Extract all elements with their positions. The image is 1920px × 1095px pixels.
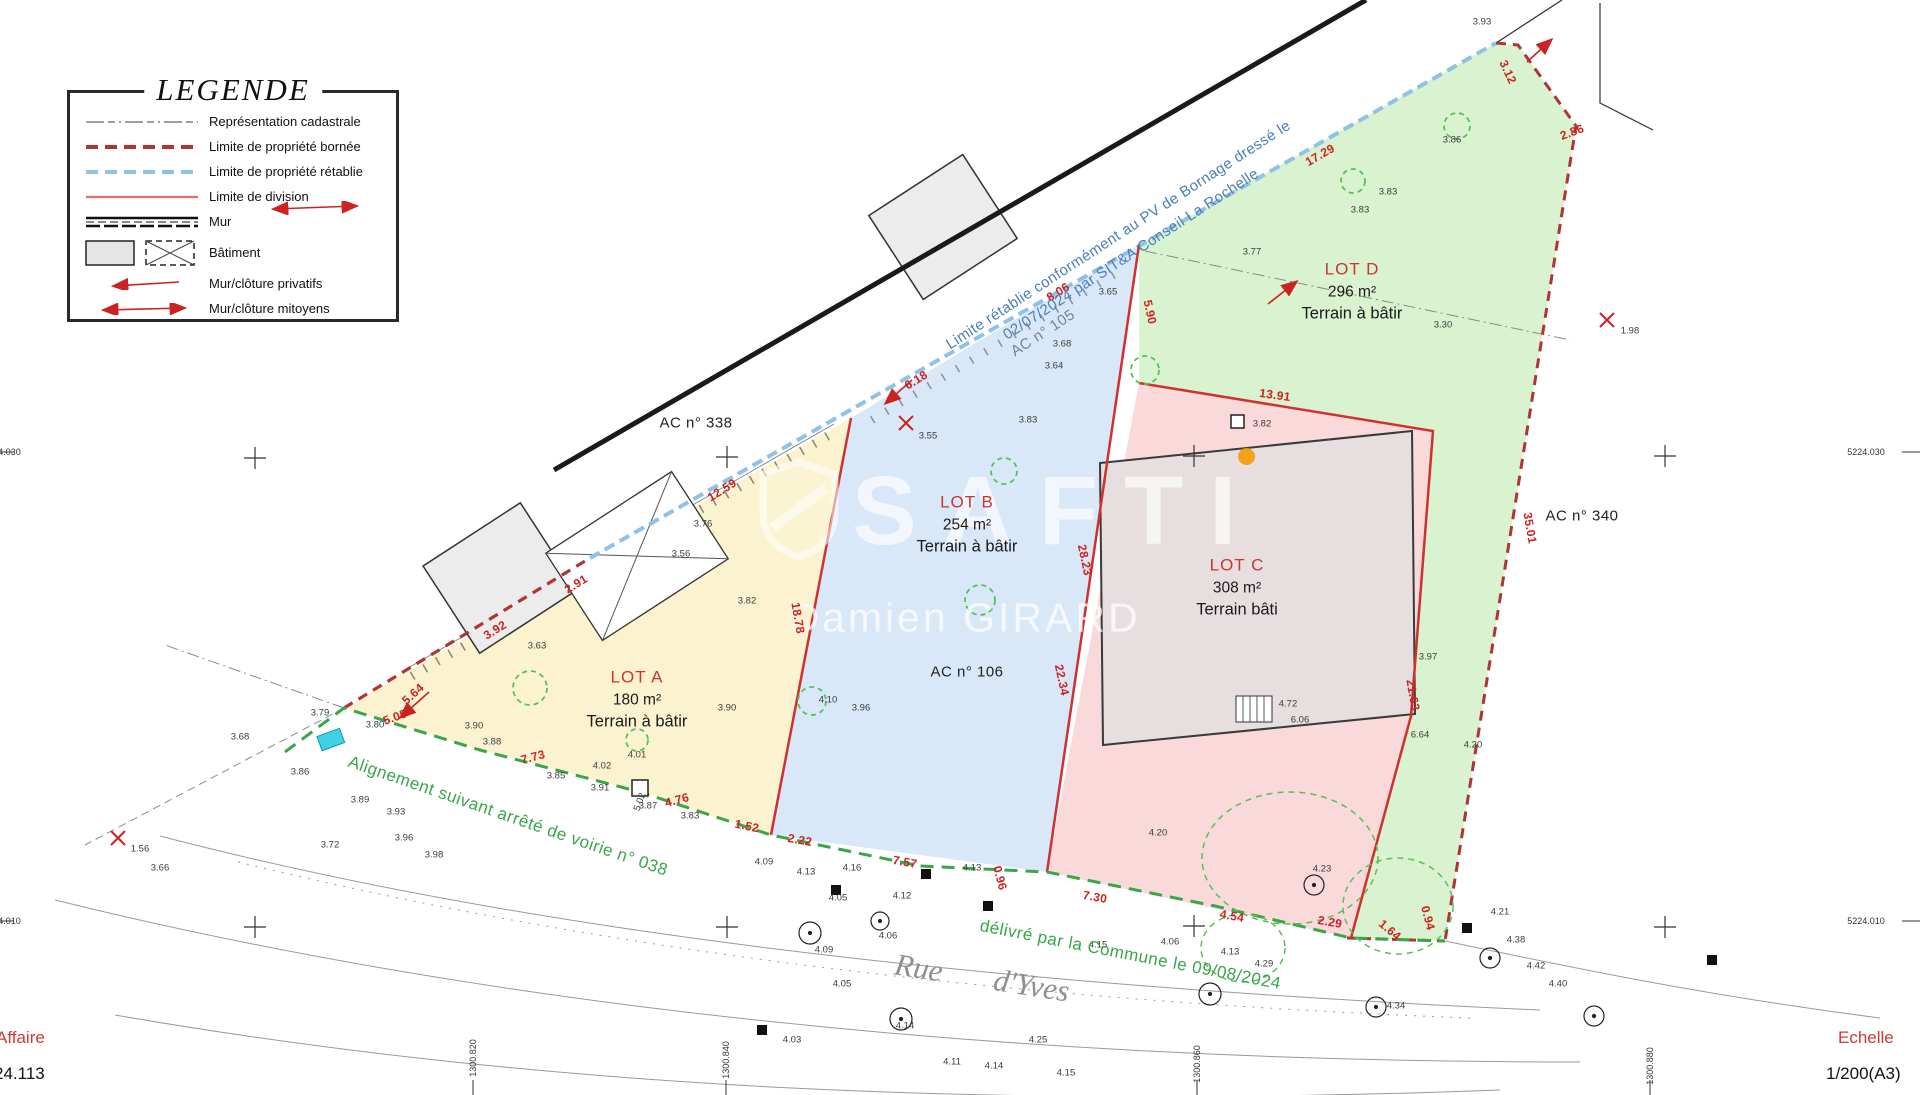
street-word-1: Rue xyxy=(892,946,945,989)
spot-elevation: 6.64 xyxy=(1411,730,1430,741)
spot-elevation: 3.98 xyxy=(425,850,444,861)
spot-elevation: 3.83 xyxy=(1379,187,1398,198)
spot-elevation: 3.56 xyxy=(672,549,691,560)
spot-elevation: 3.66 xyxy=(151,863,170,874)
legend-row-batiment: Bâtiment xyxy=(84,234,388,271)
red-dashed-sample xyxy=(84,142,209,152)
spot-elevation: 3.83 xyxy=(1351,205,1370,216)
spot-elevation: 3.82 xyxy=(738,596,757,607)
watermark-agent: Damien GIRARD xyxy=(789,595,1140,642)
spot-elevation: 4.20 xyxy=(1149,828,1168,839)
spot-elevation: 3.83 xyxy=(1019,415,1038,426)
spot-elevation: 3.93 xyxy=(387,807,406,818)
lot-area: 308 m² xyxy=(1127,578,1347,600)
spot-elevation: 4.13 xyxy=(963,863,982,874)
spot-elevation: 4.38 xyxy=(1507,935,1526,946)
spot-elevation: 3.76 xyxy=(694,519,713,530)
legend-row-mitoyens: Mur/clôture mitoyens xyxy=(84,296,388,321)
affaire-value: 24.113 xyxy=(0,1064,45,1084)
spot-elevation: 4.72 xyxy=(1279,699,1298,710)
spot-elevation: 6.06 xyxy=(1291,715,1310,726)
lot-type: Terrain à bâtir xyxy=(527,711,747,734)
spot-elevation: 4.16 xyxy=(843,863,862,874)
affaire-label: Affaire xyxy=(0,1028,45,1048)
spot-elevation: 3.68 xyxy=(231,732,250,743)
lot-name: LOT D xyxy=(1242,258,1462,282)
spot-elevation: 3.90 xyxy=(465,721,484,732)
legend-label: Bâtiment xyxy=(209,245,260,260)
watermark-orange-dot xyxy=(1238,448,1255,465)
arrow-single-sample xyxy=(84,278,209,290)
spot-elevation: 4.09 xyxy=(755,857,774,868)
spot-elevation: 3.93 xyxy=(1473,17,1492,28)
parcel-number: AC n° 338 xyxy=(659,415,732,432)
parcel-number: AC n° 106 xyxy=(930,664,1003,681)
legend-label: Limite de propriété rétablie xyxy=(209,164,363,179)
spot-elevation: 3.64 xyxy=(1045,361,1064,372)
spot-elevation: 4.06 xyxy=(1161,937,1180,948)
legend-row-cadastrale: Représentation cadastrale xyxy=(84,109,388,134)
legend-title: LEGENDE xyxy=(144,72,322,108)
legend-label: Mur xyxy=(209,214,231,229)
spot-elevation: 4.14 xyxy=(896,1021,915,1032)
spot-elevation: 3.96 xyxy=(852,703,871,714)
lot-area: 180 m² xyxy=(527,690,747,712)
grid-coordinate-vertical: 1300.820 xyxy=(468,1039,478,1077)
spot-elevation: 4.01 xyxy=(628,750,647,761)
spot-elevation: 3.68 xyxy=(1053,339,1072,350)
spot-elevation: 3.72 xyxy=(321,840,340,851)
spot-elevation: 3.30 xyxy=(1434,320,1453,331)
spot-elevation: 4.20 xyxy=(1464,740,1483,751)
spot-elevation: 3.89 xyxy=(351,795,370,806)
grid-coordinate-vertical: 1300.860 xyxy=(1192,1045,1202,1083)
spot-elevation: 4.12 xyxy=(893,891,912,902)
spot-elevation: 4.14 xyxy=(985,1061,1004,1072)
lot-type: Terrain bâti xyxy=(1127,599,1347,622)
spot-elevation: 4.05 xyxy=(829,893,848,904)
spot-elevation: 1.56 xyxy=(131,844,150,855)
spot-elevation: 3.63 xyxy=(528,641,547,652)
arrow-double-sample xyxy=(84,303,209,315)
spot-elevation: 3.79 xyxy=(311,708,330,719)
spot-elevation: 4.23 xyxy=(1313,864,1332,875)
division-direction-arrow xyxy=(260,201,370,215)
spot-elevation: 4.03 xyxy=(783,1035,802,1046)
lot-area: 296 m² xyxy=(1242,282,1462,304)
lot-label: LOT A 180 m² Terrain à bâtir xyxy=(527,666,747,735)
spot-elevation: 3.77 xyxy=(1243,247,1262,258)
spot-elevation: 4.25 xyxy=(1029,1035,1048,1046)
spot-elevation: 4.40 xyxy=(1549,979,1568,990)
lot-name: LOT C xyxy=(1127,554,1347,578)
grid-coordinate: 5224.030 xyxy=(1847,447,1885,457)
legend-label: Limite de propriété bornée xyxy=(209,139,361,154)
lot-type: Terrain à bâtir xyxy=(857,536,1077,559)
spot-elevation: 4.21 xyxy=(1491,907,1510,918)
lot-name: LOT A xyxy=(527,666,747,690)
spot-elevation: 3.80 xyxy=(366,720,385,731)
spot-elevation: 4.13 xyxy=(1221,947,1240,958)
grid-coordinate: 5224.010 xyxy=(1847,916,1885,926)
spot-elevation: 3.87 xyxy=(639,801,658,812)
legend-row-bornee: Limite de propriété bornée xyxy=(84,134,388,159)
spot-elevation: 3.82 xyxy=(1253,419,1272,430)
spot-elevation: 3.91 xyxy=(591,783,610,794)
legend-label: Mur/clôture mitoyens xyxy=(209,301,330,316)
parcel-number: AC n° 340 xyxy=(1545,508,1618,525)
legend-row-privatifs: Mur/clôture privatifs xyxy=(84,271,388,296)
spot-elevation: 4.11 xyxy=(943,1057,961,1068)
grid-coordinate: 5224.010 xyxy=(0,916,21,926)
spot-elevation: 3.97 xyxy=(1419,652,1438,663)
lot-label: LOT B 254 m² Terrain à bâtir xyxy=(857,491,1077,560)
cyan-marker xyxy=(317,728,345,750)
stairs-symbol xyxy=(1236,696,1272,722)
spot-elevation: 4.09 xyxy=(815,945,834,956)
wall-sample xyxy=(84,214,209,230)
spot-elevation: 4.06 xyxy=(879,931,898,942)
legend-label: Représentation cadastrale xyxy=(209,114,361,129)
spot-elevation: 4.29 xyxy=(1255,959,1274,970)
legend-row-retablie: Limite de propriété rétablie xyxy=(84,159,388,184)
echelle-value: 1/200(A3) xyxy=(1826,1064,1901,1084)
spot-elevation: 3.83 xyxy=(681,811,700,822)
spot-elevation: 4.42 xyxy=(1527,961,1546,972)
spot-elevation: 4.10 xyxy=(819,695,838,706)
blue-dashed-sample xyxy=(84,167,209,177)
echelle-label: Echelle xyxy=(1838,1028,1894,1048)
lot-label: LOT C 308 m² Terrain bâti xyxy=(1127,554,1347,623)
safti-shield-logo xyxy=(756,458,842,560)
spot-elevation: 3.85 xyxy=(547,771,566,782)
grid-coordinate: 5224.030 xyxy=(0,447,21,457)
spot-elevation: 4.05 xyxy=(833,979,852,990)
spot-elevation: 3.65 xyxy=(1099,287,1118,298)
spot-elevation: 3.90 xyxy=(718,703,737,714)
spot-elevation: 4.34 xyxy=(1387,1001,1406,1012)
legend-label: Mur/clôture privatifs xyxy=(209,276,322,291)
lot-label: LOT D 296 m² Terrain à bâtir xyxy=(1242,258,1462,327)
grid-coordinate-vertical: 1300.880 xyxy=(1645,1047,1655,1085)
red-solid-sample xyxy=(84,192,209,202)
spot-elevation: 3.88 xyxy=(483,737,502,748)
grid-coordinate-vertical: 1300.840 xyxy=(721,1041,731,1079)
spot-elevation: 3.86 xyxy=(291,767,310,778)
legend-box: LEGENDE Représentation cadastrale Limite… xyxy=(67,90,399,322)
spot-elevation: 4.02 xyxy=(593,761,612,772)
spot-elevation: 4.15 xyxy=(1057,1068,1076,1079)
lot-name: LOT B xyxy=(857,491,1077,515)
spot-elevation: 3.86 xyxy=(1443,135,1462,146)
right-parcel-line xyxy=(1600,3,1653,130)
spot-elevation: 3.96 xyxy=(395,833,414,844)
building-sample xyxy=(84,238,209,268)
spot-elevation: 1.98 xyxy=(1621,326,1640,337)
cadastral-plan: SAFTI Damien GIRARD LOT A 180 m² Terrain… xyxy=(0,0,1920,1095)
dashdot-line-sample xyxy=(84,117,209,127)
lot-area: 254 m² xyxy=(857,515,1077,537)
ne-boundary-line xyxy=(1496,0,1562,43)
lot-type: Terrain à bâtir xyxy=(1242,303,1462,326)
spot-elevation: 3.55 xyxy=(919,431,938,442)
spot-elevation: 4.13 xyxy=(797,867,816,878)
